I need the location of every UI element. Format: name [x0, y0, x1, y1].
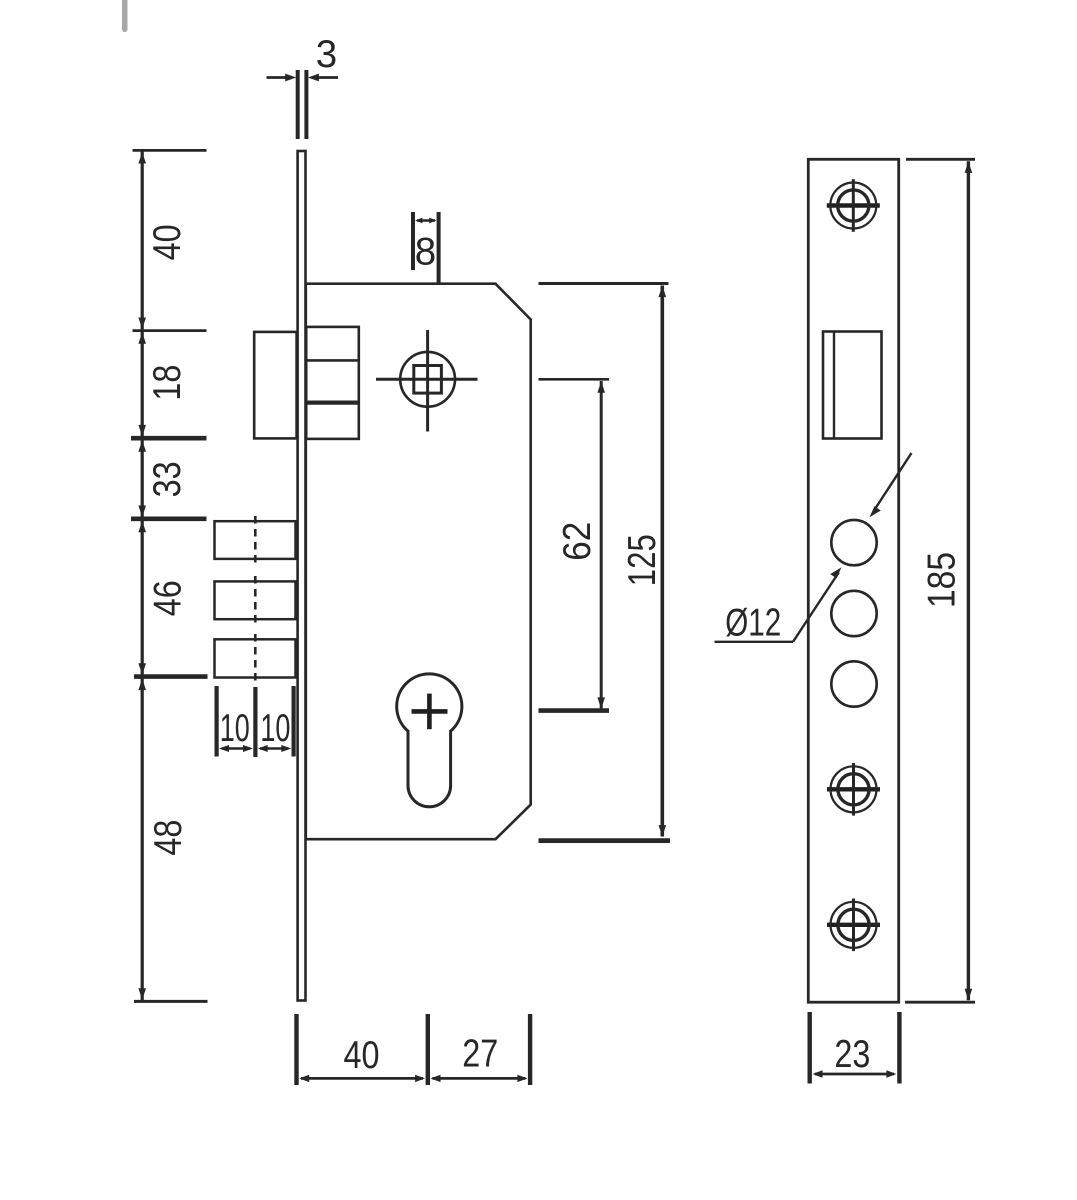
- svg-text:40: 40: [146, 224, 189, 260]
- svg-text:23: 23: [834, 1033, 870, 1076]
- svg-text:62: 62: [556, 522, 599, 561]
- svg-text:33: 33: [146, 461, 189, 497]
- svg-text:125: 125: [621, 534, 664, 586]
- svg-text:10: 10: [220, 707, 250, 750]
- svg-text:Ø12: Ø12: [725, 601, 781, 644]
- svg-text:40: 40: [344, 1034, 380, 1077]
- svg-text:3: 3: [316, 33, 337, 76]
- svg-text:18: 18: [146, 365, 189, 401]
- svg-text:10: 10: [260, 707, 290, 750]
- svg-text:48: 48: [147, 820, 190, 856]
- svg-text:8: 8: [415, 231, 436, 274]
- svg-text:46: 46: [147, 580, 190, 616]
- svg-text:27: 27: [462, 1033, 498, 1076]
- svg-text:185: 185: [921, 552, 964, 608]
